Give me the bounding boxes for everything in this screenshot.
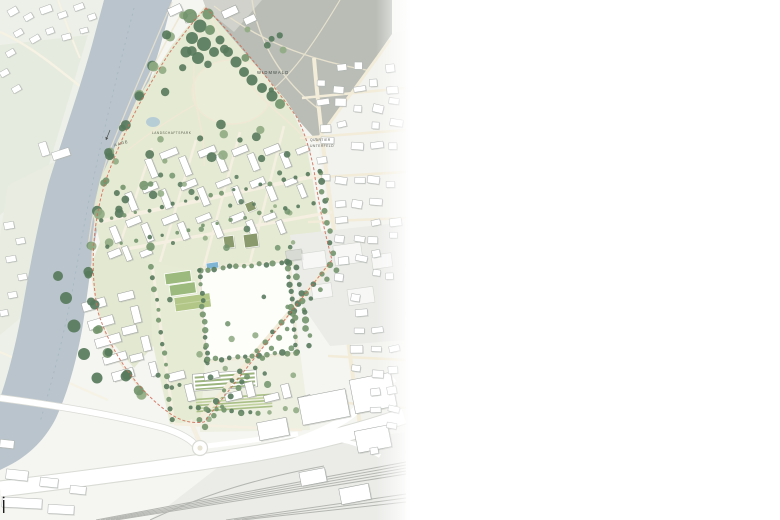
tree [95,325,103,333]
label-forest: WIDMWALD [257,70,289,75]
tree [182,182,187,187]
tree [68,320,81,333]
tree [302,316,309,323]
tree [114,190,120,196]
tree [318,178,325,185]
tree [202,319,208,325]
house [350,345,363,353]
tree [242,264,247,269]
tree [184,199,187,202]
tree [296,205,300,209]
tree [235,354,240,359]
label-quarter-line2: UNTERFELD [310,144,334,148]
tree [216,120,226,130]
tree [289,345,295,351]
tree [319,189,324,194]
tree [203,236,208,241]
tree [146,242,154,250]
page-margin [410,0,780,520]
tree [201,298,206,303]
tree [297,282,302,287]
tree [169,173,175,179]
tree [311,201,315,205]
tree [231,57,242,68]
tree [219,191,224,196]
tree [119,124,126,131]
tree [221,407,226,412]
house [350,294,360,302]
tree [228,336,234,342]
house [335,176,348,185]
tree [194,20,207,33]
house [354,105,362,112]
site-plan-map: AARE WIDMWALD QUARTIER UNTERFELD LANDSCH… [0,0,780,520]
tree [257,211,262,216]
tree [220,130,228,138]
tree [252,202,256,206]
tree [253,366,258,371]
tree [283,206,288,211]
tree [150,275,155,280]
tree [243,216,247,220]
tree [293,343,297,347]
tree [187,46,197,56]
tree [148,209,152,213]
tree [104,148,112,156]
tree [227,356,232,361]
tree [121,196,129,204]
tree [264,352,270,358]
tree [149,62,159,72]
tree [145,150,154,159]
tree [239,379,244,384]
tree [202,327,208,333]
tree [249,263,254,268]
house [18,273,28,280]
tree [205,25,215,35]
tree [151,286,157,292]
tree [267,410,272,415]
tree [211,267,217,273]
tree [139,181,148,190]
tree [216,36,225,45]
tree [275,245,281,251]
tree [197,135,203,141]
tree [211,413,217,419]
tree [280,47,287,54]
tree [179,64,186,71]
tree [220,45,229,54]
label-quarter-line1: QUARTIER [310,138,331,142]
tree [162,350,167,355]
tree [164,373,170,379]
tree [199,304,205,310]
tree [239,411,243,415]
tree [148,264,154,270]
tree [223,366,228,371]
tree [293,335,298,340]
tree [269,36,275,42]
tree [187,228,191,232]
tree [228,218,232,222]
tree [78,348,90,360]
tree [221,265,226,270]
tree [270,330,275,335]
tree [202,424,208,430]
tree [257,261,262,266]
house [335,98,346,106]
tree [149,191,157,199]
tree [233,263,239,269]
tree [269,346,274,351]
tree [302,325,309,332]
house [48,504,74,514]
tree [198,282,202,286]
tree [283,406,288,411]
tree [134,91,144,101]
tree [257,83,267,93]
tree [207,152,217,162]
tree [120,185,125,190]
tree [196,405,201,410]
tree [155,298,159,302]
house [333,86,344,94]
tree [203,406,209,412]
tree [230,378,235,383]
tree [186,32,198,44]
house [317,80,325,86]
tree [156,373,161,378]
tree [197,268,201,272]
map-fade [376,0,412,520]
tree [308,333,313,338]
tree [53,271,63,281]
house [355,177,365,183]
reserve-plot [200,262,296,360]
tree [162,158,167,163]
house [70,485,87,495]
house [3,221,14,230]
tree [170,417,175,422]
tree [248,410,252,414]
tree [161,234,164,237]
house [351,142,364,150]
tree [289,289,294,294]
tree [327,228,332,233]
tree [201,223,205,227]
tree [213,356,218,361]
tree [112,158,118,164]
tree [284,259,290,265]
tree [166,397,171,402]
tree [258,182,262,186]
tree [169,385,174,390]
tree [277,170,282,175]
tree [203,335,208,340]
tree [195,196,199,200]
house [0,309,8,316]
tree [245,358,251,364]
house [354,62,362,69]
tree [99,218,103,222]
tree [244,187,248,191]
tree [241,54,249,62]
tree [270,210,273,213]
tree [334,267,340,273]
tree [161,88,169,96]
tree [249,353,254,358]
house [351,365,360,372]
tree [260,355,265,360]
tree [255,411,260,416]
tree [275,99,285,109]
building [243,233,259,248]
tree [156,308,160,312]
house [335,216,348,223]
tree [232,188,235,191]
tree [269,87,274,92]
tree [199,226,204,231]
tree [292,315,298,321]
tree [83,267,93,277]
tree [167,406,172,411]
tree [244,226,251,233]
tree [277,32,283,38]
tree [244,374,250,380]
tree [225,321,230,326]
tree [228,204,232,208]
tree [245,27,251,33]
tree [158,330,163,335]
tree [203,9,214,20]
tree [203,343,209,349]
tree [158,173,163,178]
tree [204,61,211,68]
tree [322,208,328,214]
tree [219,357,224,362]
house [317,156,328,164]
house [355,309,368,317]
tree [134,239,138,243]
house [6,469,29,481]
tree [237,137,242,142]
tree [156,318,161,323]
tree [293,175,297,179]
tree [306,172,310,176]
tree [134,385,144,395]
park-pond [146,117,160,127]
tree [171,202,175,206]
tree [175,231,179,235]
tree [236,385,242,391]
tree [293,265,299,271]
house [338,256,349,265]
roundabout-island [197,445,202,450]
house [320,125,331,133]
tree [162,30,171,39]
tree [110,216,114,220]
tree [288,245,293,250]
tree [247,75,258,86]
tree [291,240,295,244]
house [334,235,344,243]
tree [183,9,197,23]
tree [290,296,295,301]
building-outline [301,250,327,269]
house [2,497,42,509]
tree [279,260,284,265]
tree [205,351,210,356]
tree [238,199,243,204]
tree [122,213,126,217]
tree [293,407,299,413]
tree [120,242,123,245]
tree [273,351,277,355]
tree [324,220,330,226]
tree [269,260,275,266]
tree [188,189,194,195]
tree [105,348,113,356]
tree [292,327,297,332]
tree [196,351,203,358]
tree [205,268,210,273]
site-plan-page: AARE WIDMWALD QUARTIER UNTERFELD LANDSCH… [0,0,780,520]
tree [197,417,203,423]
house [354,328,364,333]
tree [261,295,266,300]
tree [208,374,214,380]
house [335,200,346,207]
tree [318,287,323,292]
tree [325,197,329,201]
tree [200,291,205,296]
tree [302,309,307,314]
tree [262,371,266,375]
tree [228,393,234,399]
tree [239,67,249,77]
tree [223,244,230,251]
tree [214,407,218,411]
tree [285,327,290,332]
tree [115,206,122,213]
house [16,237,26,244]
tree [267,182,272,187]
tree [264,262,270,268]
tree [229,409,234,414]
tree [237,368,243,374]
tree [285,265,291,271]
tree [258,155,265,162]
tree [189,405,193,409]
tree [105,245,109,249]
tree [222,388,226,392]
house [337,64,347,72]
tree [215,222,218,225]
tree [264,42,271,49]
tree [281,177,286,182]
tree [164,384,170,390]
tree [92,373,103,384]
tree [324,277,329,282]
tree [252,332,258,338]
house [351,199,363,209]
tree [264,381,271,388]
tree [164,363,168,367]
tree [290,372,296,378]
house [8,291,18,298]
tree [60,292,72,304]
tree [279,349,286,356]
tree [158,190,165,197]
tree [160,342,164,346]
tree [134,211,137,214]
tree [167,297,173,303]
tree [286,282,292,288]
tree [177,383,181,387]
tree [317,169,322,174]
house [0,439,14,448]
tree [284,151,291,158]
tree [198,274,203,279]
tree [256,126,264,134]
tree [330,250,336,256]
tree [157,136,164,143]
tree [160,205,164,209]
tree [209,47,219,57]
tree [309,296,313,300]
tree [218,150,228,160]
house [40,477,59,488]
tree [88,242,97,251]
tree [273,204,277,208]
tree [94,209,105,220]
tree [276,335,282,341]
tree [208,193,213,198]
tree [200,311,206,317]
tree [293,273,300,280]
tree [171,241,175,245]
label-park: LANDSCHAFTSPARK [152,131,192,135]
house [334,273,343,281]
tree [147,235,152,240]
tree [205,357,210,362]
tree [148,181,154,187]
tree [90,300,100,310]
tree [227,263,232,268]
tree [293,350,299,356]
tree [197,37,211,51]
tree [306,343,311,348]
tree [235,175,239,179]
tree [286,275,291,280]
